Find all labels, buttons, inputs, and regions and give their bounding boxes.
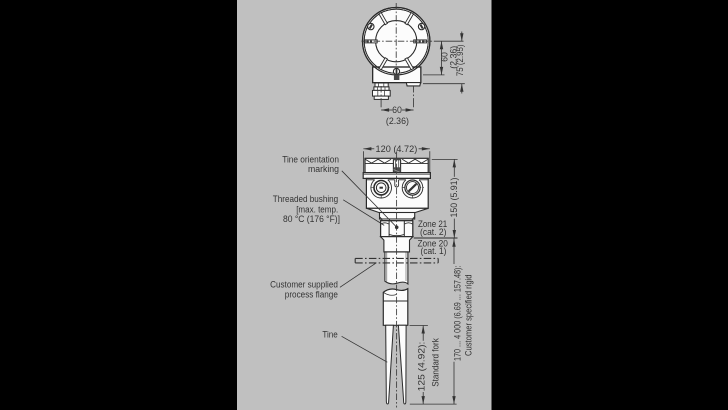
svg-text:[max. temp.: [max. temp. — [296, 204, 338, 214]
svg-text:Customer specified rigid: Customer specified rigid — [463, 274, 473, 356]
svg-text:process flange: process flange — [285, 290, 338, 300]
svg-text:marking: marking — [308, 164, 339, 174]
svg-text:75 (2.95): 75 (2.95) — [455, 44, 465, 76]
svg-text:(cat. 2): (cat. 2) — [420, 227, 446, 237]
svg-text:125 (4.92):: 125 (4.92): — [416, 342, 426, 392]
svg-text:Standard fork: Standard fork — [430, 338, 440, 387]
svg-text:(2.36): (2.36) — [386, 116, 409, 126]
svg-text:60: 60 — [392, 105, 402, 115]
svg-text:Customer supplied: Customer supplied — [270, 279, 338, 289]
svg-text:Threaded bushing: Threaded bushing — [273, 194, 338, 204]
svg-text:(cat. 1): (cat. 1) — [421, 246, 447, 256]
svg-text:170 ... 4 000 (6.69 ... 157.48: 170 ... 4 000 (6.69 ... 157.48): — [453, 266, 463, 362]
svg-text:150 (5.91): 150 (5.91) — [449, 177, 459, 217]
svg-text:80 °C (176 °F)]: 80 °C (176 °F)] — [283, 214, 340, 224]
svg-text:Tine: Tine — [322, 329, 337, 339]
svg-text:Tine orientation: Tine orientation — [282, 155, 339, 165]
